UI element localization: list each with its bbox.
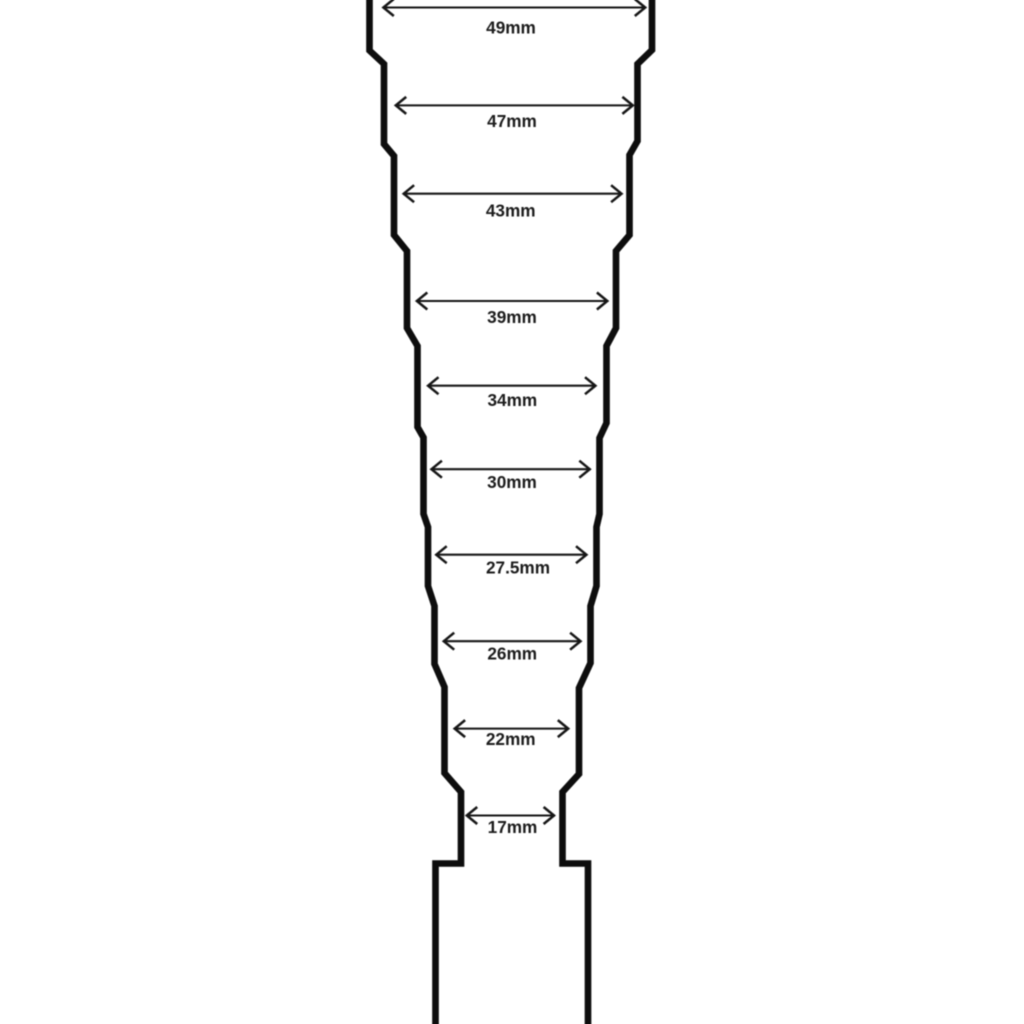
svg-text:49mm: 49mm — [486, 17, 536, 37]
svg-text:30mm: 30mm — [487, 472, 537, 492]
svg-text:26mm: 26mm — [487, 644, 537, 664]
svg-text:27.5mm: 27.5mm — [486, 558, 550, 578]
svg-text:47mm: 47mm — [487, 111, 537, 131]
svg-text:22mm: 22mm — [486, 729, 536, 749]
svg-text:39mm: 39mm — [487, 307, 537, 327]
svg-text:17mm: 17mm — [488, 817, 538, 837]
svg-text:43mm: 43mm — [486, 201, 536, 221]
svg-text:34mm: 34mm — [487, 390, 537, 410]
